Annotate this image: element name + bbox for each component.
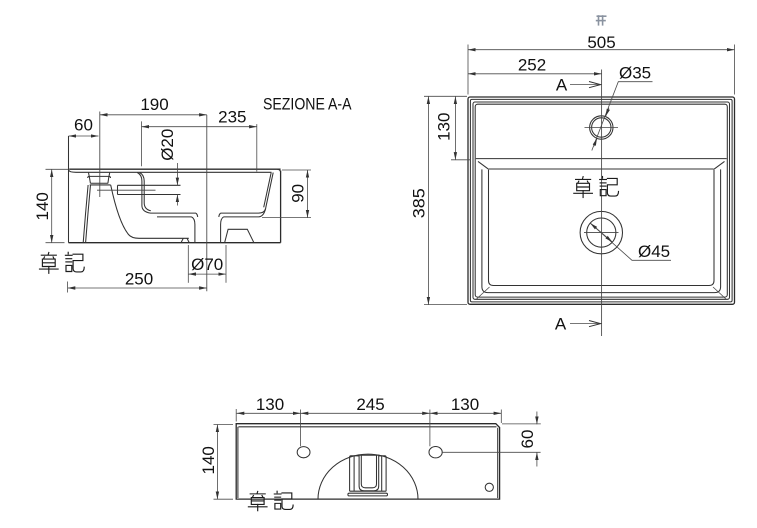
svg-text:60: 60: [74, 116, 93, 135]
svg-text:60: 60: [518, 430, 537, 449]
svg-text:130: 130: [435, 113, 454, 141]
svg-text:245: 245: [356, 395, 384, 414]
svg-text:385: 385: [410, 188, 429, 218]
svg-text:130: 130: [451, 395, 479, 414]
svg-text:250: 250: [125, 269, 153, 288]
svg-text:140: 140: [199, 446, 218, 474]
svg-text:252: 252: [518, 55, 546, 74]
svg-text:Ø20: Ø20: [158, 129, 177, 161]
svg-text:235: 235: [218, 107, 246, 126]
svg-text:A: A: [556, 75, 568, 94]
svg-text:505: 505: [587, 33, 615, 52]
svg-text:SEZIONE A-A: SEZIONE A-A: [263, 94, 352, 113]
svg-text:A: A: [555, 314, 567, 333]
svg-text:90: 90: [289, 184, 308, 203]
svg-text:Ø35: Ø35: [619, 64, 651, 83]
svg-text:Ø45: Ø45: [638, 242, 670, 261]
svg-text:140: 140: [33, 192, 52, 220]
svg-text:190: 190: [140, 95, 168, 114]
svg-text:130: 130: [256, 395, 284, 414]
svg-text:Ø70: Ø70: [191, 255, 223, 274]
